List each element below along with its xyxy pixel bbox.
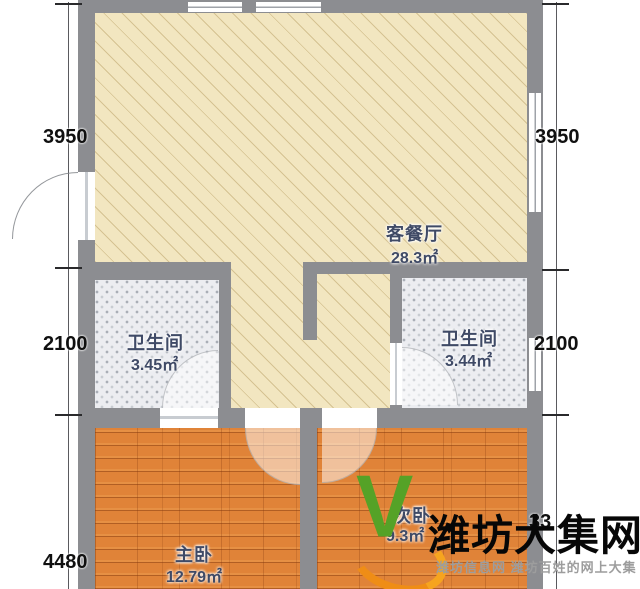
wall-bathroom-left-right (219, 262, 231, 428)
wall-bathroom-right-left-upper (390, 274, 402, 343)
wall-bottom-segment-2 (218, 408, 245, 428)
wall-center-stub (303, 262, 317, 340)
second-bedroom-door-opening (322, 408, 377, 428)
wall-bottom-segment-4 (377, 408, 527, 428)
window-right-living (528, 92, 542, 213)
watermark-title: 潍坊大集网 (428, 502, 640, 563)
area-master-bedroom: 12.79㎡ (166, 563, 222, 587)
dimension-tick-right-top (542, 3, 569, 5)
label-living-dining-room: 客餐厅 (386, 220, 443, 246)
dim-left-middle: 2100 (43, 333, 88, 356)
area-bathroom-left: 3.45㎡ (131, 351, 178, 375)
bathroom-left-door-opening (160, 408, 218, 428)
dimension-tick-right-mid (542, 269, 569, 271)
wall-bottom-segment-1 (78, 408, 160, 428)
wall-left (78, 0, 95, 589)
wall-between-bedrooms (300, 428, 317, 589)
dim-left-top: 3950 (43, 126, 88, 149)
window-top-1 (187, 1, 243, 13)
dimension-tick-left-top (55, 3, 82, 5)
dimension-tick-right-low (542, 414, 569, 416)
master-bedroom-door-opening (245, 408, 300, 428)
wall-bottom-segment-3 (300, 408, 322, 428)
dim-right-top: 3950 (535, 126, 580, 149)
entrance-door-arc (12, 172, 78, 239)
area-living-dining-room: 28.3㎡ (391, 244, 438, 268)
wall-right (527, 0, 543, 589)
window-top-2 (255, 1, 322, 13)
dimension-line-left (68, 2, 69, 589)
dim-right-middle: 2100 (534, 333, 579, 356)
area-bathroom-right: 3.44㎡ (445, 347, 492, 371)
floor-plan: 3950 2100 4480 3950 2100 33 客餐厅 28.3㎡ 卫生… (0, 0, 640, 589)
bathroom-right-door-opening (390, 343, 402, 405)
dimension-tick-left-low (55, 414, 82, 416)
dimension-line-right (556, 2, 557, 589)
dim-left-bottom: 4480 (43, 551, 88, 574)
wall-bathroom-left-top (95, 262, 231, 280)
dimension-tick-left-mid (55, 267, 82, 269)
watermark-subtitle: 潍坊信息网 潍坊百姓的网上大集 (436, 557, 637, 576)
entrance-door-opening (78, 172, 95, 240)
wall-center-horizontal (303, 262, 402, 274)
